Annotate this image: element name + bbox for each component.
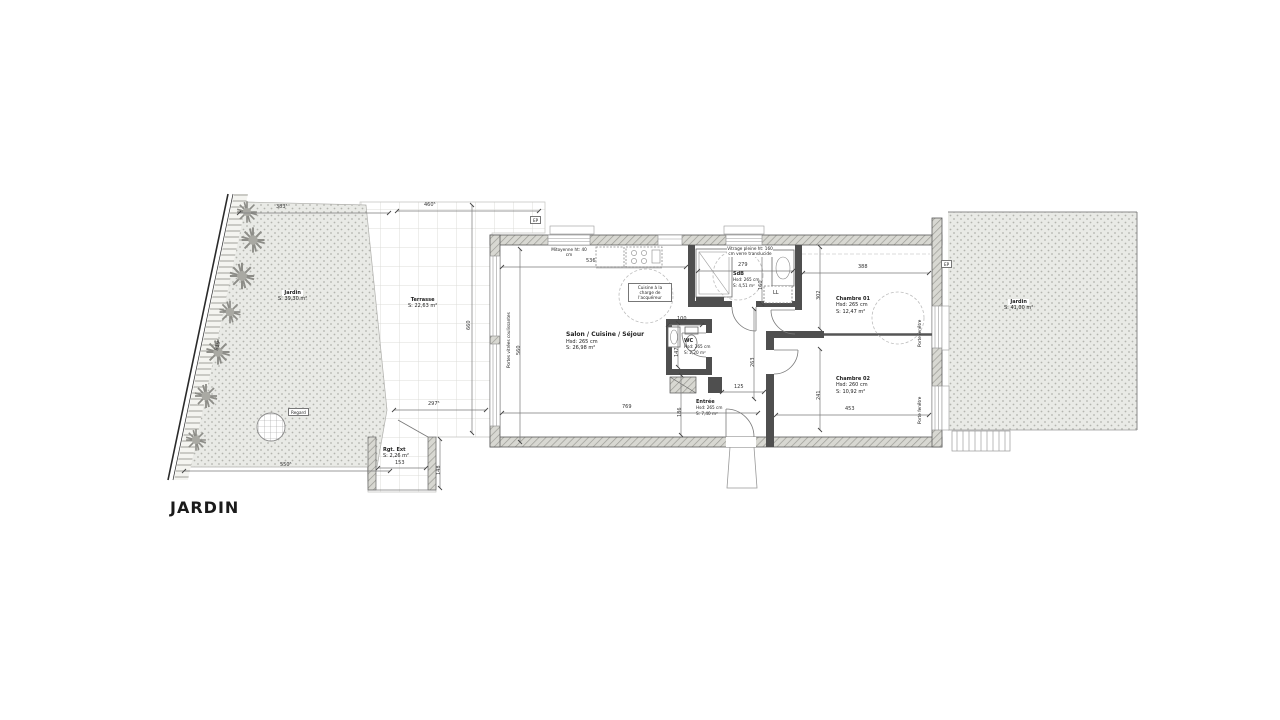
- dim-297: 297⁵: [428, 401, 440, 407]
- chambre2-porte-fenetre: [932, 386, 942, 430]
- chambre1-door-arc: [771, 310, 795, 334]
- chambre1-area: S: 12,47 m²: [836, 309, 870, 315]
- dim-550: 550⁵: [280, 462, 292, 468]
- garden-grate-strip: [952, 431, 1010, 451]
- chambre1-height: Hsd: 265 cm: [836, 302, 870, 308]
- salon-label: Salon / Cuisine / Séjour Hsd: 265 cm S: …: [566, 331, 644, 351]
- page-title: JARDIN: [170, 498, 239, 518]
- window-sill: [550, 226, 594, 234]
- ep-box-right: EP: [941, 260, 952, 268]
- dim-536: 536: [586, 258, 596, 264]
- washing-machine-label: LL: [773, 290, 779, 296]
- dim-263: 263: [750, 357, 756, 367]
- dim-125: 125: [734, 384, 744, 390]
- rgt-ext-area: S: 2,26 m²: [383, 453, 409, 459]
- jardin-left-label: Jardin S: 39,30 m²: [278, 290, 307, 303]
- dim-148: 148: [436, 465, 442, 475]
- jardin-left-area: S: 39,30 m²: [278, 296, 307, 302]
- floor-plan-drawing: [0, 0, 1280, 720]
- kitchen-unit: [596, 247, 624, 267]
- sdb-glazing: [726, 235, 762, 245]
- kitchen-window: [658, 235, 682, 245]
- dim-100: 100: [677, 316, 687, 322]
- porte-fenetre-note-2: Porte fenêtre: [917, 397, 922, 424]
- rgt-ext-label: Rgt. Ext S: 2,26 m²: [383, 447, 409, 460]
- entree-area: S: 7,40 m²: [696, 411, 722, 416]
- jardin-right-label: Jardin S: 41,00 m²: [1004, 299, 1033, 312]
- dim-769: 769: [622, 404, 632, 410]
- mitoyenne-note: Mitoyenne ht: 40 cm: [550, 247, 588, 258]
- floor-plan-canvas: JARDIN Jardin S: 39,30 m² Terrasse S: 22…: [0, 0, 1280, 720]
- entree-label: Entrée Hsd: 265 cm S: 7,40 m²: [696, 399, 722, 416]
- wc-height: Hsd: 265 cm: [684, 344, 710, 349]
- entrance-path: [727, 447, 757, 488]
- dim-660: 660: [466, 320, 472, 330]
- terrasse-area-value: S: 22,63 m²: [408, 303, 437, 309]
- chambre2-area: S: 10,92 m²: [836, 389, 870, 395]
- dim-453: 453: [845, 406, 855, 412]
- dim-186: 186: [677, 407, 683, 417]
- portes-vitrees-note: Portes vitrées coulissantes: [506, 312, 511, 368]
- chambre1-porte-fenetre: [932, 306, 942, 348]
- dim-560: 560: [516, 345, 522, 355]
- sdb-door-arc: [732, 307, 756, 331]
- wc-area: S: 2,20 m²: [684, 350, 710, 355]
- dim-302: 302: [816, 290, 822, 300]
- dim-383: 383⁵: [276, 204, 288, 210]
- regard-manhole: [257, 413, 285, 441]
- dim-279: 279: [738, 262, 748, 268]
- chambre2-door-arc: [774, 350, 798, 374]
- salon-sliding-door: [490, 256, 500, 336]
- dim-241: 241: [816, 390, 822, 400]
- dim-388: 388: [858, 264, 868, 270]
- jardin-right-area: S: 41,00 m²: [1004, 305, 1033, 311]
- wc-label: WC Hsd: 265 cm S: 2,20 m²: [684, 338, 710, 355]
- ep-box-top: EP: [530, 216, 541, 224]
- chambre2-label: Chambre 02 Hsd: 260 cm S: 10,92 m²: [836, 376, 870, 395]
- vanity: [696, 297, 724, 302]
- entrance-opening: [726, 437, 756, 447]
- salon-top-window: [548, 235, 590, 245]
- sdb-label: SdB Hsd: 265 cm S: 4,51 m²: [733, 271, 759, 288]
- entree-height: Hsd: 265 cm: [696, 405, 722, 410]
- sdb-washbasin: [772, 250, 794, 286]
- chambre2-height: Hsd: 260 cm: [836, 382, 870, 388]
- salon-name: Salon / Cuisine / Séjour: [566, 331, 644, 339]
- dim-153: 153: [395, 460, 405, 466]
- porte-fenetre-note-1: Porte fenêtre: [917, 320, 922, 347]
- cuisine-note: Cuisine à la charge de l'acquéreur: [628, 283, 672, 302]
- regard-label: Regard: [288, 408, 309, 416]
- right-garden-area: [948, 212, 1137, 451]
- window-sill: [724, 226, 764, 234]
- terrasse-label: Terrasse S: 22,63 m²: [408, 297, 437, 310]
- chambre1-label: Chambre 01 Hsd: 265 cm S: 12,47 m²: [836, 296, 870, 315]
- vitrage-note: Vitrage pleine ht: 160 cm verre transluc…: [727, 246, 773, 257]
- dim-147: 147: [674, 347, 680, 357]
- dim-160: 160: [758, 280, 764, 290]
- dim-460: 460⁵: [424, 202, 436, 208]
- sdb-area: S: 4,51 m²: [733, 283, 759, 288]
- salon-sliding-door: [490, 344, 500, 426]
- salon-area: S: 26,98 m²: [566, 345, 644, 351]
- sdb-height: Hsd: 265 cm: [733, 277, 759, 282]
- left-garden-area: [168, 194, 387, 480]
